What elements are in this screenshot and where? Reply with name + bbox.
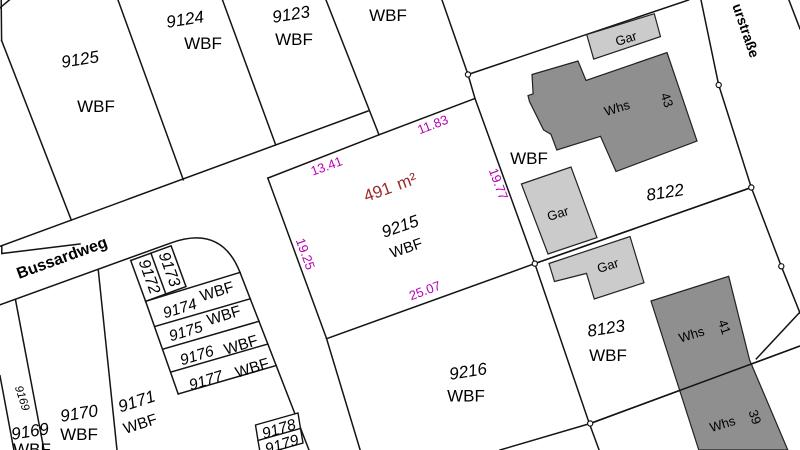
svg-text:WBF: WBF bbox=[184, 34, 222, 53]
svg-text:WBF: WBF bbox=[60, 425, 98, 444]
svg-text:WBF: WBF bbox=[510, 149, 548, 168]
svg-text:WBF: WBF bbox=[77, 97, 115, 116]
svg-text:WBF: WBF bbox=[13, 440, 51, 450]
svg-text:WBF: WBF bbox=[447, 387, 485, 406]
svg-text:WBF: WBF bbox=[275, 30, 313, 49]
svg-text:WBF: WBF bbox=[369, 6, 407, 25]
svg-text:WBF: WBF bbox=[589, 346, 627, 365]
